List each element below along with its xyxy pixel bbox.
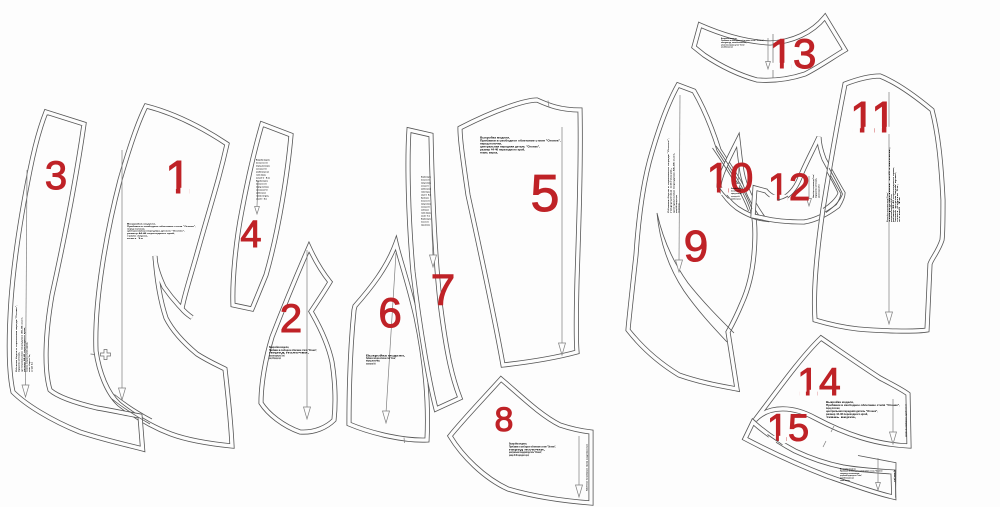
svg-text:центральная передняя деталь "О: центральная передняя деталь "Огонек",: [421, 186, 429, 188]
svg-text:центральная передняя деталь "О: центральная передняя деталь "Огонек",: [256, 169, 267, 171]
svg-text:11: 11: [850, 93, 896, 142]
svg-text:2: 2: [280, 297, 302, 341]
svg-text:1: 1: [165, 151, 191, 203]
svg-text:сгиб низа 1х: сгиб низа 1х: [893, 469, 896, 482]
svg-text:перед полочки,: перед полочки,: [256, 166, 270, 168]
svg-text:центральная передняя 44-46 сче: центральная передняя 44-46 счет,: [817, 184, 820, 198]
svg-text:размер 44-46 переходного крой,: размер 44-46 переходного крой,: [269, 357, 281, 360]
svg-text:счет 1х: счет 1х: [127, 238, 145, 240]
svg-text:счет борта 1х,: счет борта 1х,: [28, 353, 31, 372]
svg-text:Прибавки в свободное облегание: Прибавки в свободное облегание стиля "Ог…: [256, 163, 268, 165]
svg-text:Выкройка модели,: Выкройка модели,: [421, 176, 431, 179]
svg-text:ткань верха,: ткань верха,: [256, 196, 270, 198]
svg-text:ткань верха,: ткань верха,: [256, 175, 266, 177]
svg-text:3: 3: [45, 154, 67, 198]
svg-text:наружная обтачка,: наружная обтачка,: [670, 167, 673, 213]
svg-text:размер 44-46 переходного края,: размер 44-46 переходного края,: [23, 326, 26, 372]
svg-text:12: 12: [768, 167, 810, 209]
svg-text:Прибавки в свободное облегание: Прибавки в свободное облегание стиля "Ог…: [731, 190, 741, 193]
svg-text:сгиб 1 сгибание край низа: сгиб 1 сгибание край низа: [905, 403, 908, 437]
svg-text:Выкройка модели,: Выкройка модели,: [731, 187, 742, 190]
svg-text:Выкройка модели,: Выкройка модели,: [256, 180, 268, 183]
svg-text:Обтачка борта и горловины пере: Обтачка борта и горловины переда "Огонек…: [812, 174, 815, 198]
svg-text:Прибавки в свободное облегание: Прибавки в свободное облегание стиля "Ог…: [256, 184, 267, 186]
svg-text:6: 6: [378, 289, 401, 336]
svg-text:ткань верха низа края,: ткань верха низа края,: [679, 203, 681, 213]
svg-text:размер 44-46 переходного крой,: размер 44-46 переходного крой,: [509, 454, 529, 457]
svg-text:счет 1х: счет 1х: [256, 178, 272, 180]
svg-text:центральная передняя 44-46 сче: центральная передняя 44-46 счет,: [672, 152, 675, 213]
svg-text:ткань верха,: ткань верха,: [840, 480, 850, 482]
svg-text:счет 1х: счет 1х: [421, 195, 432, 197]
svg-text:счет 1х: счет 1х: [256, 199, 269, 201]
svg-text:центральная передняя деталь "О: центральная передняя деталь "Огонек",: [421, 207, 430, 209]
svg-text:Прибавки в свободное облегание: Прибавки в свободное облегание стиля "Ог…: [366, 357, 396, 360]
svg-text:перед полочки,: перед полочки,: [421, 183, 431, 185]
svg-text:размер 44-46 переходного крой,: размер 44-46 переходного крой,: [421, 209, 429, 212]
svg-text:7: 7: [431, 266, 455, 315]
svg-text:перед полочки,: перед полочки,: [421, 225, 430, 227]
svg-text:Прибавки в свободное облегание: Прибавки в свободное облегание стиля "Ог…: [421, 222, 429, 224]
svg-text:сгиб 1х: сгиб 1х: [899, 194, 901, 222]
svg-text:центральная передняя 44-46 сче: центральная передняя 44-46 счет,: [20, 316, 23, 372]
svg-text:наружная обтачка,: наружная обтачка,: [18, 352, 21, 372]
svg-text:размер 44-46 переходного крой,: размер 44-46 переходного крой,: [421, 188, 431, 191]
svg-text:размер 44-46 переходного крой,: размер 44-46 переходного крой,: [256, 171, 269, 174]
svg-text:счет 1х: счет 1х: [421, 216, 431, 218]
svg-text:сгиб 1х: сгиб 1х: [31, 361, 34, 372]
svg-text:15: 15: [767, 408, 809, 450]
svg-text:ткань верха,: ткань верха,: [826, 416, 857, 419]
svg-text:размер 44-46 переходного крой,: размер 44-46 переходного крой,: [721, 45, 733, 48]
svg-text:перед полочки,: перед полочки,: [421, 204, 431, 206]
svg-text:9: 9: [684, 222, 708, 271]
svg-text:центральная передняя деталь "О: центральная передняя деталь "Огонек",: [256, 190, 268, 192]
svg-text:ткань верха,: ткань верха,: [480, 152, 498, 155]
svg-text:перед полочки,: перед полочки,: [256, 187, 269, 189]
svg-text:размер 44-46 переходного крой,: размер 44-46 переходного крой,: [731, 197, 741, 200]
svg-text:Обтачка борта и горловины пере: Обтачка борта и горловины переда "Огонек…: [15, 304, 18, 372]
svg-text:Обтачка борта и горловины пере: Обтачка борта и горловины переда "Огонек…: [667, 137, 670, 213]
svg-text:Прибавки в свободное облегание: Прибавки в свободное облегание стиля "Ог…: [421, 180, 430, 182]
svg-text:Выкройка модели,: Выкройка модели,: [256, 159, 270, 162]
svg-text:ткань верха,: ткань верха,: [421, 192, 430, 194]
svg-text:Выкройка модели,: Выкройка модели,: [421, 218, 431, 221]
svg-text:5: 5: [531, 165, 560, 223]
svg-text:14: 14: [797, 361, 840, 404]
svg-text:Выкройка модели,: Выкройка модели,: [366, 355, 406, 358]
svg-text:центральная передняя деталь "О: центральная передняя деталь "Огонек",: [366, 363, 376, 365]
svg-text:4: 4: [240, 214, 261, 256]
svg-text:размер 44-46 переходного крой,: размер 44-46 переходного крой,: [256, 192, 266, 195]
svg-text:наружная обтачка,: наружная обтачка,: [815, 178, 818, 198]
svg-text:8: 8: [495, 401, 514, 439]
svg-text:fold line Сгибание линя издел: fold line Сгибание линя изделия низ: [586, 443, 589, 491]
svg-text:ткань верха,: ткань верха,: [421, 213, 431, 215]
svg-text:Выкройка модели,: Выкройка модели,: [421, 197, 429, 200]
svg-text:Прибавки в свободное облегание: Прибавки в свободное облегание стиля "Ог…: [421, 201, 430, 203]
svg-text:размер 44-46 переходного края,: размер 44-46 переходного края,: [675, 195, 678, 213]
